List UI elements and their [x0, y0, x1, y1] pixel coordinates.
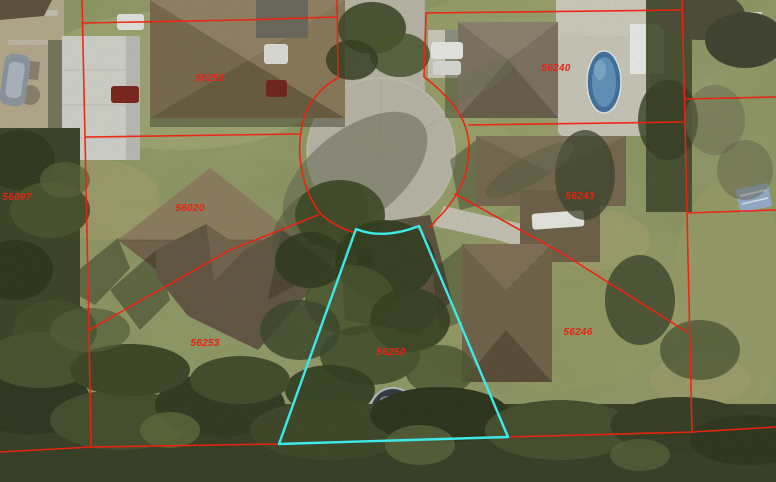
parcel-label: 56250 [376, 347, 405, 358]
parcel-label: 56020 [175, 203, 204, 214]
parcel-label: 56240 [541, 63, 570, 74]
parcel-label: 56097 [2, 192, 31, 203]
parcel-label: 56246 [563, 327, 592, 338]
aerial-map-canvas[interactable]: 56256 56240 56243 56246 56250 56253 5602… [0, 0, 776, 482]
parcel-label: 56253 [190, 338, 219, 349]
parcel-label: 56256 [195, 73, 224, 84]
aerial-imagery: 56256 56240 56243 56246 56250 56253 5602… [0, 0, 776, 482]
trees-and-shadows [0, 0, 776, 482]
parcel-label: 56243 [565, 191, 594, 202]
